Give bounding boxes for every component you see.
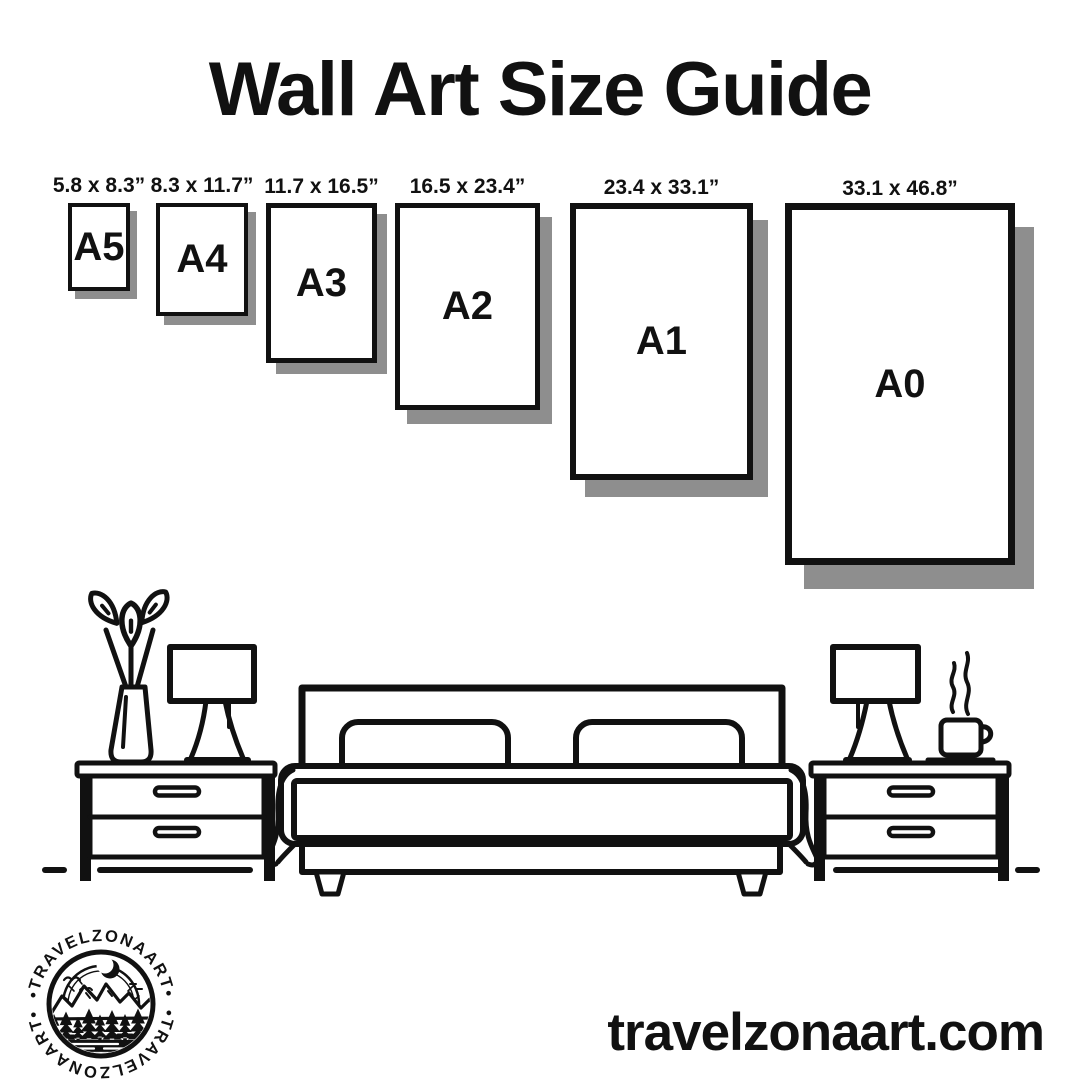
double-bed (267, 688, 817, 894)
nightstand-left (77, 763, 275, 881)
page-root: Wall Art Size Guide 5.8 x 8.3” A5 8.3 x … (0, 0, 1080, 1080)
vase-with-flowers-icon (85, 587, 172, 762)
table-lamp-right-icon (833, 647, 918, 760)
brand-logo: •TRAVELZONAART• •TRAVELZONAART• (24, 927, 178, 1080)
nightstand-right (811, 763, 1009, 881)
website-text: travelzonaart.com (607, 1006, 1044, 1059)
bedroom-illustration: •TRAVELZONAART• •TRAVELZONAART• (0, 0, 1080, 1080)
coffee-cup-icon (928, 653, 993, 760)
table-lamp-left-icon (170, 647, 254, 760)
